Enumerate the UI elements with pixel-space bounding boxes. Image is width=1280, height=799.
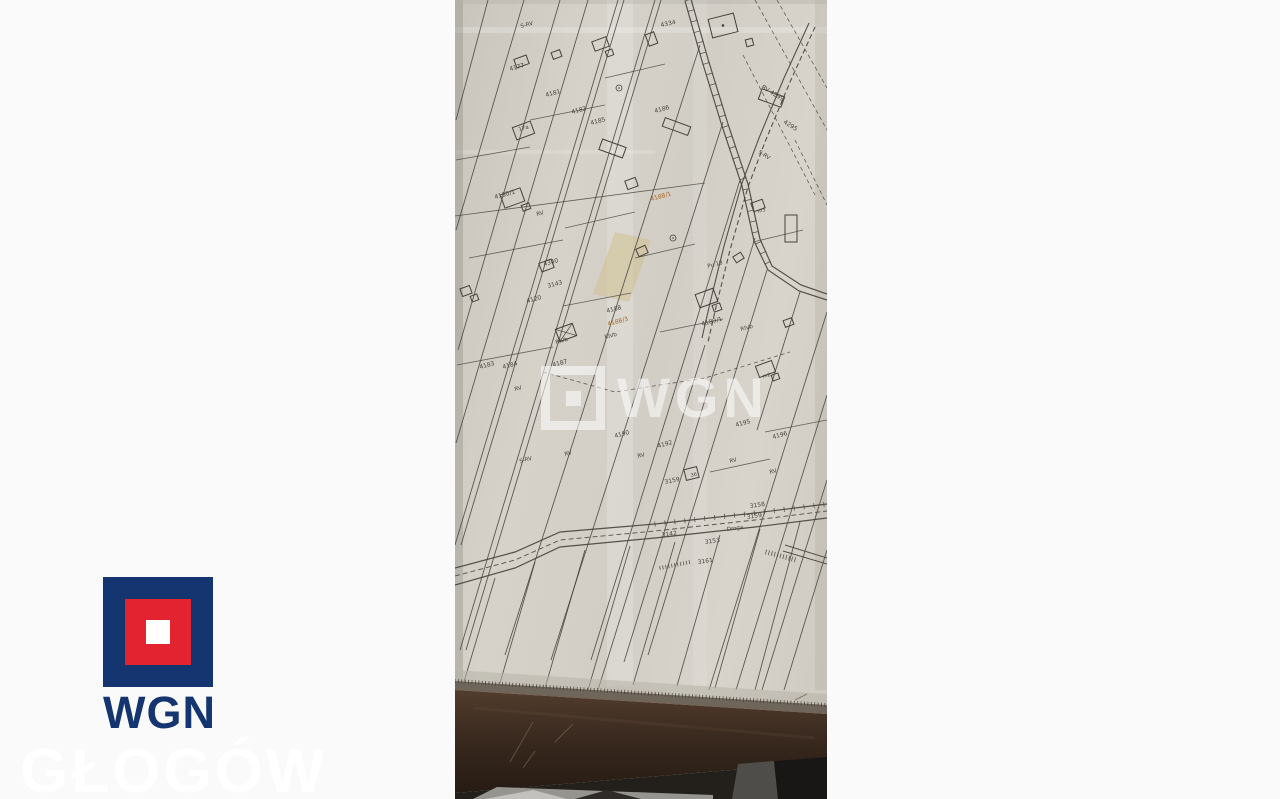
svg-text:RV: RV	[637, 452, 646, 460]
svg-text:4340: 4340	[543, 257, 560, 268]
svg-text:4187: 4187	[552, 358, 569, 369]
svg-text:Droga: Droga	[726, 525, 743, 533]
svg-text:RV 4299: RV 4299	[760, 84, 785, 103]
svg-text:RV: RV	[536, 210, 545, 218]
svg-text:S-RV: S-RV	[519, 456, 533, 465]
svg-text:Pu 18: Pu 18	[707, 260, 724, 270]
svg-text:RV: RV	[564, 450, 573, 458]
corner-watermark: GŁOGÓW	[20, 741, 327, 799]
svg-text:4184: 4184	[502, 360, 519, 371]
svg-text:4295: 4295	[782, 119, 799, 133]
svg-text:4180/1: 4180/1	[494, 189, 516, 201]
svg-text:S-RV: S-RV	[757, 150, 771, 162]
svg-text:3158: 3158	[749, 501, 765, 510]
wgn-logo: WGN	[103, 577, 213, 738]
svg-text:RV: RV	[729, 457, 738, 465]
svg-text:4177: 4177	[509, 62, 526, 73]
svg-text:RV: RV	[514, 385, 523, 393]
svg-text:m2: m2	[762, 372, 771, 380]
page-background: GŁOGÓW S-RV433441774181418241854186RV 42…	[0, 0, 1280, 799]
cadastral-map: S-RV433441774181418241854186RV 42994295S…	[455, 0, 827, 799]
svg-text:4183: 4183	[479, 360, 496, 371]
svg-text:3153: 3153	[704, 537, 720, 546]
wgn-logo-red-square	[125, 599, 191, 665]
svg-text:3159: 3159	[664, 476, 681, 486]
svg-text:3142: 3142	[661, 530, 677, 539]
svg-text:RIVb: RIVb	[740, 324, 754, 333]
wgn-logo-navy-square	[103, 577, 213, 687]
svg-text:17a: 17a	[518, 124, 530, 132]
svg-text:4196: 4196	[772, 430, 789, 441]
wgn-logo-white-square	[146, 620, 170, 644]
svg-text:4182: 4182	[571, 105, 588, 116]
listing-photo: S-RV433441774181418241854186RV 42994295S…	[455, 0, 827, 799]
svg-text:RIVb: RIVb	[555, 337, 569, 346]
svg-text:m3: m3	[757, 207, 766, 215]
svg-text:4186: 4186	[654, 104, 671, 115]
svg-text:4120: 4120	[526, 294, 543, 305]
svg-text:4195: 4195	[735, 418, 752, 429]
wgn-logo-wordmark: WGN	[103, 688, 213, 738]
svg-text:4185: 4185	[590, 116, 607, 127]
svg-text:3143: 3143	[547, 279, 564, 290]
